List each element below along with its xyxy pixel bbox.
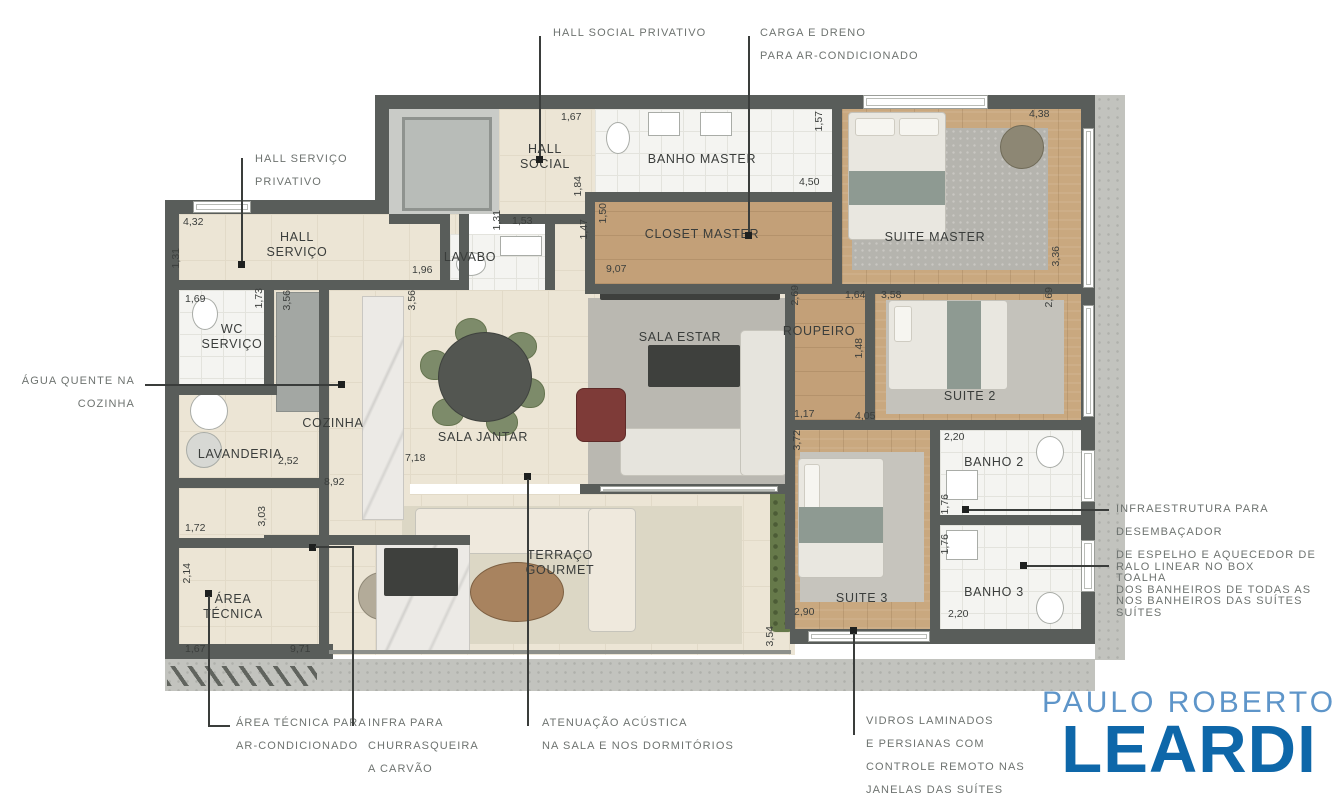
leader-line xyxy=(315,546,353,548)
leader-line xyxy=(145,384,341,386)
floor-plan: HALL SOCIAL BANHO MASTER SUITE MASTER CL… xyxy=(0,0,1343,807)
brand-logo: PAULO ROBERTO LEARDI xyxy=(1038,686,1340,780)
room-label-suite-3: SUITE 3 xyxy=(836,591,888,606)
window-suite-3 xyxy=(808,631,930,642)
wall xyxy=(375,95,389,214)
terraco-sofa-short xyxy=(588,508,636,632)
wall xyxy=(179,385,277,395)
suite-2-bed xyxy=(888,300,1008,390)
landscape-hatching xyxy=(167,666,317,686)
banho-2-toilet xyxy=(1036,436,1064,468)
room-label-banho-3: BANHO 3 xyxy=(964,585,1024,600)
callout-agua-quente: ÁGUA QUENTE NA COZINHA xyxy=(20,370,135,416)
wall xyxy=(179,478,329,488)
window xyxy=(1083,128,1094,288)
leader-line xyxy=(969,509,1109,511)
wall xyxy=(585,192,832,202)
room-closet-master xyxy=(595,202,832,284)
room-label-roupeiro: ROUPEIRO xyxy=(783,324,855,339)
wall xyxy=(832,109,842,294)
room-label-lavanderia: LAVANDERIA xyxy=(198,447,282,462)
elevator-car xyxy=(402,117,492,211)
callout-hall-servico-privativo: HALL SERVIÇO PRIVATIVO xyxy=(255,148,348,194)
dining-table xyxy=(438,332,532,422)
callout-infra-churrasqueira: INFRA PARA CHURRASQUEIRA A CARVÃO xyxy=(368,712,479,781)
room-roupeiro xyxy=(795,294,865,420)
banho-master-sink xyxy=(648,112,680,136)
leader-endpoint xyxy=(745,232,752,239)
leader-line xyxy=(208,596,210,726)
room-label-hall-servico: HALL SERVIÇO xyxy=(267,230,328,260)
window xyxy=(863,95,988,109)
wall xyxy=(545,224,555,290)
leader-line xyxy=(748,36,750,234)
room-label-closet-master: CLOSET MASTER xyxy=(645,227,759,242)
wall xyxy=(585,284,1081,294)
leader-line xyxy=(539,36,541,158)
window xyxy=(1083,305,1094,417)
wall xyxy=(785,284,795,430)
lavanderia-tub xyxy=(190,392,228,430)
wall xyxy=(785,420,1081,430)
kitchen-island xyxy=(362,296,404,520)
room-label-banho-master: BANHO MASTER xyxy=(648,152,756,167)
callout-hall-social-privativo: HALL SOCIAL PRIVATIVO xyxy=(553,22,706,45)
wall xyxy=(930,515,1081,525)
room-label-wc-servico: WC SERVIÇO xyxy=(202,322,263,352)
callout-vidros-laminados: VIDROS LAMINADOS E PERSIANAS COM CONTROL… xyxy=(866,710,1025,802)
wall xyxy=(165,200,179,659)
leader-endpoint xyxy=(238,261,245,268)
terraco-railing xyxy=(329,650,791,654)
callout-area-tecnica-ar: ÁREA TÉCNICA PARA AR-CONDICIONADO xyxy=(236,712,367,758)
wall xyxy=(264,290,274,385)
room-label-hall-social: HALL SOCIAL xyxy=(520,142,570,172)
wall xyxy=(165,644,333,659)
callout-ralo-linear: RALO LINEAR NO BOX DOS BANHEIROS DE TODA… xyxy=(1116,556,1343,625)
churrasqueira-grill xyxy=(384,548,458,596)
leader-line xyxy=(241,158,243,264)
wall xyxy=(585,192,595,294)
window xyxy=(1081,450,1095,502)
banho-2-sink xyxy=(946,470,978,500)
suite-master-bed xyxy=(848,112,946,240)
callout-atenuacao-acustica: ATENUAÇÃO ACÚSTICA NA SALA E NOS DORMITÓ… xyxy=(542,712,734,758)
wall xyxy=(264,535,470,545)
room-label-area-tecnica: ÁREA TÉCNICA xyxy=(203,592,263,622)
banho-master-sink xyxy=(700,112,732,136)
wall xyxy=(179,280,469,290)
leader-endpoint xyxy=(338,381,345,388)
banho-3-sink xyxy=(946,530,978,560)
sala-sofa-short xyxy=(740,330,787,476)
leader-line xyxy=(527,479,529,726)
room-label-cozinha: COZINHA xyxy=(302,416,363,431)
room-label-suite-master: SUITE MASTER xyxy=(885,230,986,245)
banho-master-toilet xyxy=(606,122,630,154)
wall xyxy=(865,294,875,420)
kitchen-counter xyxy=(276,292,322,412)
suite-master-armchair xyxy=(1000,125,1044,169)
room-label-banho-2: BANHO 2 xyxy=(964,455,1024,470)
leader-line xyxy=(1027,565,1109,567)
wall xyxy=(499,214,595,224)
brand-logo-main: LEARDI xyxy=(1038,720,1340,780)
room-label-suite-2: SUITE 2 xyxy=(944,389,996,404)
banho-3-toilet xyxy=(1036,592,1064,624)
leader-line xyxy=(208,725,230,727)
room-label-sala-estar: SALA ESTAR xyxy=(639,330,722,345)
leader-line xyxy=(352,546,354,726)
callout-carga-dreno: CARGA E DRENO PARA AR-CONDICIONADO xyxy=(760,22,919,68)
room-label-sala-jantar: SALA JANTAR xyxy=(438,430,528,445)
leader-line xyxy=(853,633,855,735)
wall xyxy=(930,430,940,629)
sliding-door-terraco xyxy=(600,486,778,492)
wall xyxy=(319,290,329,644)
lavabo-sink xyxy=(500,236,542,256)
room-label-lavabo: LAVABO xyxy=(444,250,496,265)
suite-3-bed xyxy=(798,458,884,578)
wall xyxy=(389,214,450,224)
coffee-table xyxy=(648,345,740,387)
sala-armchair xyxy=(576,388,626,442)
wall xyxy=(785,430,795,629)
room-label-terraco: TERRAÇO GOURMET xyxy=(526,548,595,578)
leader-endpoint xyxy=(1020,562,1027,569)
leader-endpoint xyxy=(962,506,969,513)
leader-endpoint xyxy=(536,156,543,163)
